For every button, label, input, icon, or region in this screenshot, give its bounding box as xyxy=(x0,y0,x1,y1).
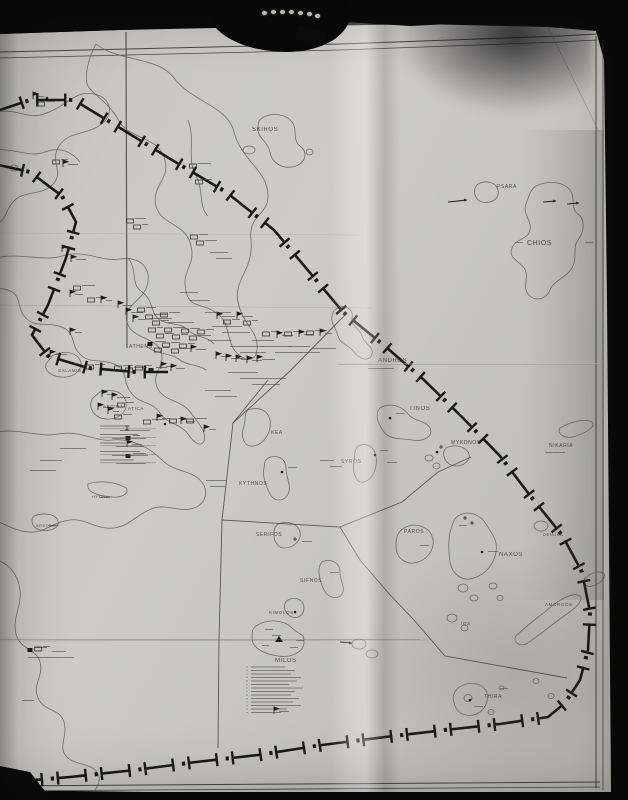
unit-flag-symbol xyxy=(70,290,75,297)
unit-box-symbol xyxy=(88,298,95,302)
illegible-map-text xyxy=(206,480,226,481)
legend-row-number xyxy=(246,712,247,713)
legend-row-number xyxy=(246,666,247,667)
unit-list-underline xyxy=(100,429,156,430)
illegible-unit-text xyxy=(195,418,207,419)
illegible-unit-text xyxy=(76,259,86,260)
illegible-map-text xyxy=(288,346,310,347)
unit-flag-symbol xyxy=(71,255,76,262)
illegible-unit-text xyxy=(75,294,83,295)
illegible-unit-text xyxy=(126,402,134,403)
illegible-map-text xyxy=(205,312,231,313)
unit-box-symbol xyxy=(198,330,205,334)
illegible-unit-text xyxy=(188,343,195,344)
unit-box-symbol xyxy=(157,334,164,338)
legend-row-text xyxy=(251,677,301,678)
unit-box-symbol xyxy=(149,328,156,332)
legend-row-number xyxy=(246,698,247,699)
pointer-arrow-head xyxy=(464,198,467,201)
unit-box-symbol xyxy=(153,321,160,325)
unit-flag-symbol xyxy=(133,315,138,322)
mount-screw-dot xyxy=(271,10,276,14)
coastline xyxy=(319,560,343,597)
illegible-map-text xyxy=(28,657,74,658)
map-label-thira: THIRA xyxy=(484,694,502,700)
map-label-kea: KEA xyxy=(271,430,283,436)
illegible-unit-text xyxy=(155,341,166,342)
coastline xyxy=(470,595,478,601)
illegible-map-text xyxy=(222,332,250,333)
map-point-dot xyxy=(389,417,392,420)
coastline xyxy=(489,583,497,589)
illegible-map-text xyxy=(52,651,66,652)
unit-flag-symbol xyxy=(171,364,176,371)
illegible-unit-text xyxy=(165,333,174,334)
illegible-unit-text xyxy=(46,101,55,102)
map-label-skiros: SKIROS xyxy=(252,127,278,133)
illegible-map-text xyxy=(210,486,226,487)
illegible-unit-text xyxy=(262,359,275,360)
cross-mark xyxy=(463,516,467,520)
illegible-map-text xyxy=(262,346,292,347)
illegible-unit-text xyxy=(67,249,74,250)
illegible-map-text xyxy=(330,466,342,467)
illegible-map-text xyxy=(387,462,397,463)
illegible-map-text xyxy=(262,645,269,646)
illegible-map-text xyxy=(545,452,565,453)
unit-list-text xyxy=(100,443,126,444)
unit-box-symbol xyxy=(127,219,134,223)
unit-flag-symbol xyxy=(299,330,304,337)
illegible-map-text xyxy=(252,340,274,341)
illegible-unit-text xyxy=(133,435,140,436)
illegible-map-text xyxy=(116,446,144,447)
coastline xyxy=(433,463,440,469)
illegible-unit-text xyxy=(279,711,289,712)
unit-flag-symbol xyxy=(204,425,209,432)
illegible-map-text xyxy=(288,467,297,468)
illegible-unit-text xyxy=(157,327,163,328)
map-point-dot xyxy=(481,551,484,554)
unit-box-symbol xyxy=(144,420,151,424)
mount-screw-dot xyxy=(280,10,285,14)
map-label-serifos: SERIFOS xyxy=(256,532,282,538)
illegible-unit-text xyxy=(232,319,240,320)
illegible-unit-text xyxy=(75,332,82,333)
illegible-unit-text xyxy=(156,367,167,368)
coastline xyxy=(447,614,457,622)
coastline xyxy=(559,420,593,437)
legend-row-number xyxy=(246,680,247,681)
legend-row-number xyxy=(246,705,247,706)
coastline xyxy=(533,679,539,684)
illegible-map-text xyxy=(290,647,298,648)
unit-flag-symbol xyxy=(226,354,231,361)
illegible-map-text xyxy=(116,463,146,464)
unit-box-symbol xyxy=(165,328,172,332)
unit-flag-symbol xyxy=(191,345,196,352)
i-beam-symbol xyxy=(125,426,129,430)
map-label-milos: MILOS xyxy=(275,658,297,664)
illegible-map-text xyxy=(585,242,593,243)
map-label-paros: PAROS xyxy=(404,529,424,535)
legend-row-number xyxy=(246,684,247,685)
map-label-nikaria: NIKARIA xyxy=(549,443,573,449)
illegible-map-text xyxy=(205,390,231,391)
map-label-denusa: DENUSA xyxy=(543,532,563,537)
illegible-unit-text xyxy=(117,397,130,398)
coastline xyxy=(0,560,99,795)
map-label-amorgos: AMORGOS xyxy=(545,602,573,607)
map-point-dot xyxy=(469,699,472,702)
illegible-map-text xyxy=(40,460,62,461)
unit-filled-box-symbol xyxy=(28,648,33,652)
illegible-map-text xyxy=(60,448,86,449)
illegible-map-text xyxy=(275,352,301,353)
illegible-map-text xyxy=(100,497,110,498)
unit-list-text xyxy=(100,434,138,435)
illegible-unit-text xyxy=(133,453,146,454)
coastline xyxy=(263,456,289,500)
legend-row-text xyxy=(251,695,291,696)
illegible-map-text xyxy=(312,348,336,349)
map-point-dot xyxy=(436,451,439,454)
unit-list-text xyxy=(100,426,130,427)
legend-row-text xyxy=(251,684,289,685)
demarcation-line xyxy=(0,164,168,372)
coastline xyxy=(584,572,604,586)
illegible-unit-text xyxy=(209,429,216,430)
unit-list-underline xyxy=(100,446,156,447)
map-label-aegina: AEGINA xyxy=(103,404,124,409)
illegible-unit-text xyxy=(82,285,95,286)
illegible-unit-text xyxy=(38,96,44,97)
map-neatline-border xyxy=(0,787,600,791)
map-label-chios: CHIOS xyxy=(527,240,552,247)
illegible-unit-text xyxy=(242,316,253,317)
illegible-map-text xyxy=(500,688,508,689)
map-label-ios: IOS xyxy=(461,621,471,626)
illegible-map-text xyxy=(215,396,237,397)
legend-row-text xyxy=(251,712,281,713)
illegible-map-text xyxy=(420,545,429,546)
illegible-unit-text xyxy=(138,319,145,320)
cross-mark xyxy=(470,521,474,525)
legend-row-number xyxy=(246,687,247,688)
illegible-map-text xyxy=(216,258,232,259)
map-label-naxos: NAXOS xyxy=(499,552,523,558)
illegible-unit-text xyxy=(152,419,165,420)
coastline xyxy=(444,446,470,466)
illegible-map-text xyxy=(230,346,264,347)
illegible-unit-text xyxy=(190,328,200,329)
graticule-line xyxy=(0,233,360,235)
legend-row-number xyxy=(246,701,247,702)
unit-list-text xyxy=(100,451,140,452)
unit-box-symbol xyxy=(138,308,145,312)
legend-row-text xyxy=(251,674,291,675)
illegible-unit-text xyxy=(181,334,188,335)
illegible-map-text xyxy=(515,242,523,243)
illegible-map-text xyxy=(120,430,150,431)
illegible-map-text xyxy=(180,292,198,293)
unit-box-symbol xyxy=(163,343,170,347)
legend-row-text xyxy=(251,667,285,668)
unit-list-text xyxy=(100,460,134,461)
illegible-unit-text xyxy=(134,367,147,368)
illegible-unit-text xyxy=(198,335,211,336)
map-neatline-border xyxy=(0,782,600,786)
illegible-map-text xyxy=(474,706,483,707)
coastline xyxy=(488,710,494,715)
map-label-atica: ATICA xyxy=(128,406,144,411)
unit-flag-symbol xyxy=(181,417,186,424)
mount-screw-dot xyxy=(298,11,303,15)
map-label-salamis: SALAMIS xyxy=(58,368,82,373)
coastline xyxy=(534,521,548,531)
illegible-unit-text xyxy=(176,368,185,369)
illegible-unit-text xyxy=(43,646,50,647)
mount-screw-dot xyxy=(262,11,267,15)
map-label-syros: SYROS xyxy=(341,459,362,465)
graticule-line xyxy=(0,305,372,308)
illegible-map-text xyxy=(22,700,34,701)
graticule-line xyxy=(126,32,127,348)
map-artwork: SKIROSPSARACHIOSANDROSTINOSMYKONOSNIKARI… xyxy=(0,0,628,800)
coastline xyxy=(332,307,373,359)
map-label-sifnos: SIFNOS xyxy=(300,578,322,584)
illegible-map-text xyxy=(168,322,194,323)
illegible-map-text xyxy=(252,384,280,385)
illegible-map-text xyxy=(302,541,312,542)
unit-box-symbol xyxy=(190,336,197,340)
legend-row-number xyxy=(246,673,247,674)
map-point-dot xyxy=(281,471,284,474)
unit-box-symbol xyxy=(172,349,179,353)
legend-row-text xyxy=(251,688,303,689)
illegible-unit-text xyxy=(146,307,156,308)
unit-box-symbol xyxy=(38,102,45,106)
coastline xyxy=(425,455,433,461)
illegible-unit-text xyxy=(198,163,211,164)
legend-row-text xyxy=(251,691,295,692)
illegible-unit-text xyxy=(162,418,170,419)
legend-row-number xyxy=(246,677,247,678)
illegible-map-text xyxy=(396,413,405,414)
pointer-arrow-head xyxy=(349,641,352,644)
illegible-unit-text xyxy=(325,333,332,334)
pointer-arrow-head xyxy=(576,201,579,204)
coastline xyxy=(352,639,366,649)
coastline xyxy=(458,584,468,592)
unit-list-underline xyxy=(100,437,156,438)
photographed-map: SKIROSPSARACHIOSANDROSTINOSMYKONOSNIKARI… xyxy=(0,0,628,800)
illegible-map-text xyxy=(190,300,210,301)
unit-flag-symbol xyxy=(216,352,221,359)
illegible-unit-text xyxy=(132,444,142,445)
illegible-unit-text xyxy=(161,320,169,321)
illegible-unit-text xyxy=(123,414,132,415)
map-label-psara: PSARA xyxy=(497,184,517,190)
illegible-map-text xyxy=(208,340,232,341)
illegible-unit-text xyxy=(169,312,180,313)
unit-list-underline xyxy=(100,463,156,464)
legend-row-number xyxy=(246,694,247,695)
unit-list-underline xyxy=(100,454,156,455)
legend-row-text xyxy=(251,709,287,710)
zone-boundary-line xyxy=(222,520,567,678)
demarcation-tick-marks xyxy=(0,164,168,372)
illegible-map-text xyxy=(264,378,286,379)
coastline xyxy=(366,650,378,658)
legend-row-text xyxy=(251,705,301,706)
illegible-unit-text xyxy=(205,240,217,241)
legend-row-number xyxy=(246,691,247,692)
unit-flag-symbol xyxy=(63,160,68,167)
illegible-unit-text xyxy=(171,342,180,343)
illegible-map-text xyxy=(212,326,242,327)
legend-row-text xyxy=(251,681,297,682)
unit-box-symbol xyxy=(134,225,141,229)
map-label-andros: ANDROS xyxy=(378,358,407,364)
coastline xyxy=(306,149,313,155)
illegible-map-text xyxy=(300,352,320,353)
illegible-map-text xyxy=(380,450,388,451)
illegible-unit-text xyxy=(68,164,78,165)
unit-box-symbol xyxy=(74,286,81,290)
coastline xyxy=(548,694,554,699)
map-neatline-border xyxy=(0,34,597,52)
unit-flag-symbol xyxy=(237,312,242,319)
illegible-map-text xyxy=(150,318,172,319)
coastline xyxy=(0,150,80,162)
illegible-unit-text xyxy=(144,365,152,366)
illegible-map-text xyxy=(112,455,148,456)
illegible-map-text xyxy=(240,378,264,379)
illegible-map-text xyxy=(272,635,281,636)
illegible-map-text xyxy=(459,525,467,526)
pointer-arrow-head xyxy=(553,199,556,202)
zone-boundary-line xyxy=(218,380,268,748)
illegible-unit-text xyxy=(293,331,299,332)
illegible-unit-text xyxy=(196,349,206,350)
coastline xyxy=(258,115,305,168)
illegible-unit-text xyxy=(113,411,119,412)
map-point-dot xyxy=(294,611,297,614)
unit-box-symbol xyxy=(191,235,198,239)
map-label-tinos: TINOS xyxy=(409,406,430,412)
map-label-hydra: HYDRA xyxy=(92,494,109,499)
illegible-unit-text xyxy=(106,300,112,301)
map-label-mykonos: MYKONOS xyxy=(451,440,481,446)
pointer-arrow xyxy=(448,200,467,202)
mount-screw-dot xyxy=(307,12,312,16)
illegible-map-text xyxy=(112,438,146,439)
unit-box-symbol xyxy=(197,241,204,245)
unit-box-symbol xyxy=(180,344,187,348)
unit-flag-symbol xyxy=(102,390,107,397)
illegible-unit-text xyxy=(199,234,208,235)
legend-row-number xyxy=(246,670,247,671)
illegible-unit-text xyxy=(142,224,148,225)
illegible-map-text xyxy=(228,372,258,373)
illegible-map-text xyxy=(296,640,304,641)
zone-boundary-line xyxy=(340,457,471,527)
illegible-unit-text xyxy=(55,354,67,355)
illegible-unit-text xyxy=(123,365,133,366)
unit-filled-box-symbol xyxy=(149,368,154,372)
illegible-unit-text xyxy=(206,329,214,330)
map-label-kimolos: KIMOLOS xyxy=(269,610,294,615)
illegible-map-text xyxy=(368,368,394,369)
unit-box-symbol xyxy=(173,335,180,339)
coastline xyxy=(243,146,255,154)
mount-screw-dot xyxy=(289,10,294,14)
illegible-map-text xyxy=(210,252,228,253)
illegible-map-text xyxy=(48,525,58,526)
cross-mark xyxy=(439,445,443,449)
coastline xyxy=(242,408,270,446)
map-point-dot xyxy=(374,454,377,457)
illegible-unit-text xyxy=(204,179,212,180)
illegible-unit-text xyxy=(135,218,146,219)
legend-row-text xyxy=(251,698,299,699)
unit-flag-symbol xyxy=(118,301,123,308)
mount-screw-dot xyxy=(315,14,320,18)
illegible-unit-text xyxy=(222,316,235,317)
illegible-unit-text xyxy=(61,159,68,160)
illegible-unit-text xyxy=(123,305,132,306)
coastline xyxy=(497,596,503,601)
map-neatline-border xyxy=(0,40,597,58)
cross-mark xyxy=(293,537,297,541)
coastline xyxy=(475,182,499,202)
map-point-dot xyxy=(46,97,49,100)
unit-filled-box-symbol xyxy=(148,342,153,346)
illegible-unit-text xyxy=(95,364,105,365)
unit-flag-symbol xyxy=(277,331,282,338)
illegible-unit-text xyxy=(173,327,185,328)
map-label-kythnos: KYTHNOS xyxy=(239,481,267,487)
illegible-map-text xyxy=(330,572,339,573)
illegible-map-text xyxy=(240,352,266,353)
legend-row-text xyxy=(251,670,295,671)
illegible-map-text xyxy=(265,629,273,630)
map-point-dot xyxy=(164,423,167,426)
demarcation-dots xyxy=(0,164,168,372)
legend-row-text xyxy=(251,702,293,703)
filled-triangle-marker xyxy=(275,636,283,642)
illegible-map-text xyxy=(320,460,334,461)
legend-row-number xyxy=(246,708,247,709)
unit-box-symbol xyxy=(263,332,270,336)
illegible-unit-text xyxy=(252,320,258,321)
illegible-map-text xyxy=(488,551,498,552)
illegible-map-text xyxy=(30,470,56,471)
